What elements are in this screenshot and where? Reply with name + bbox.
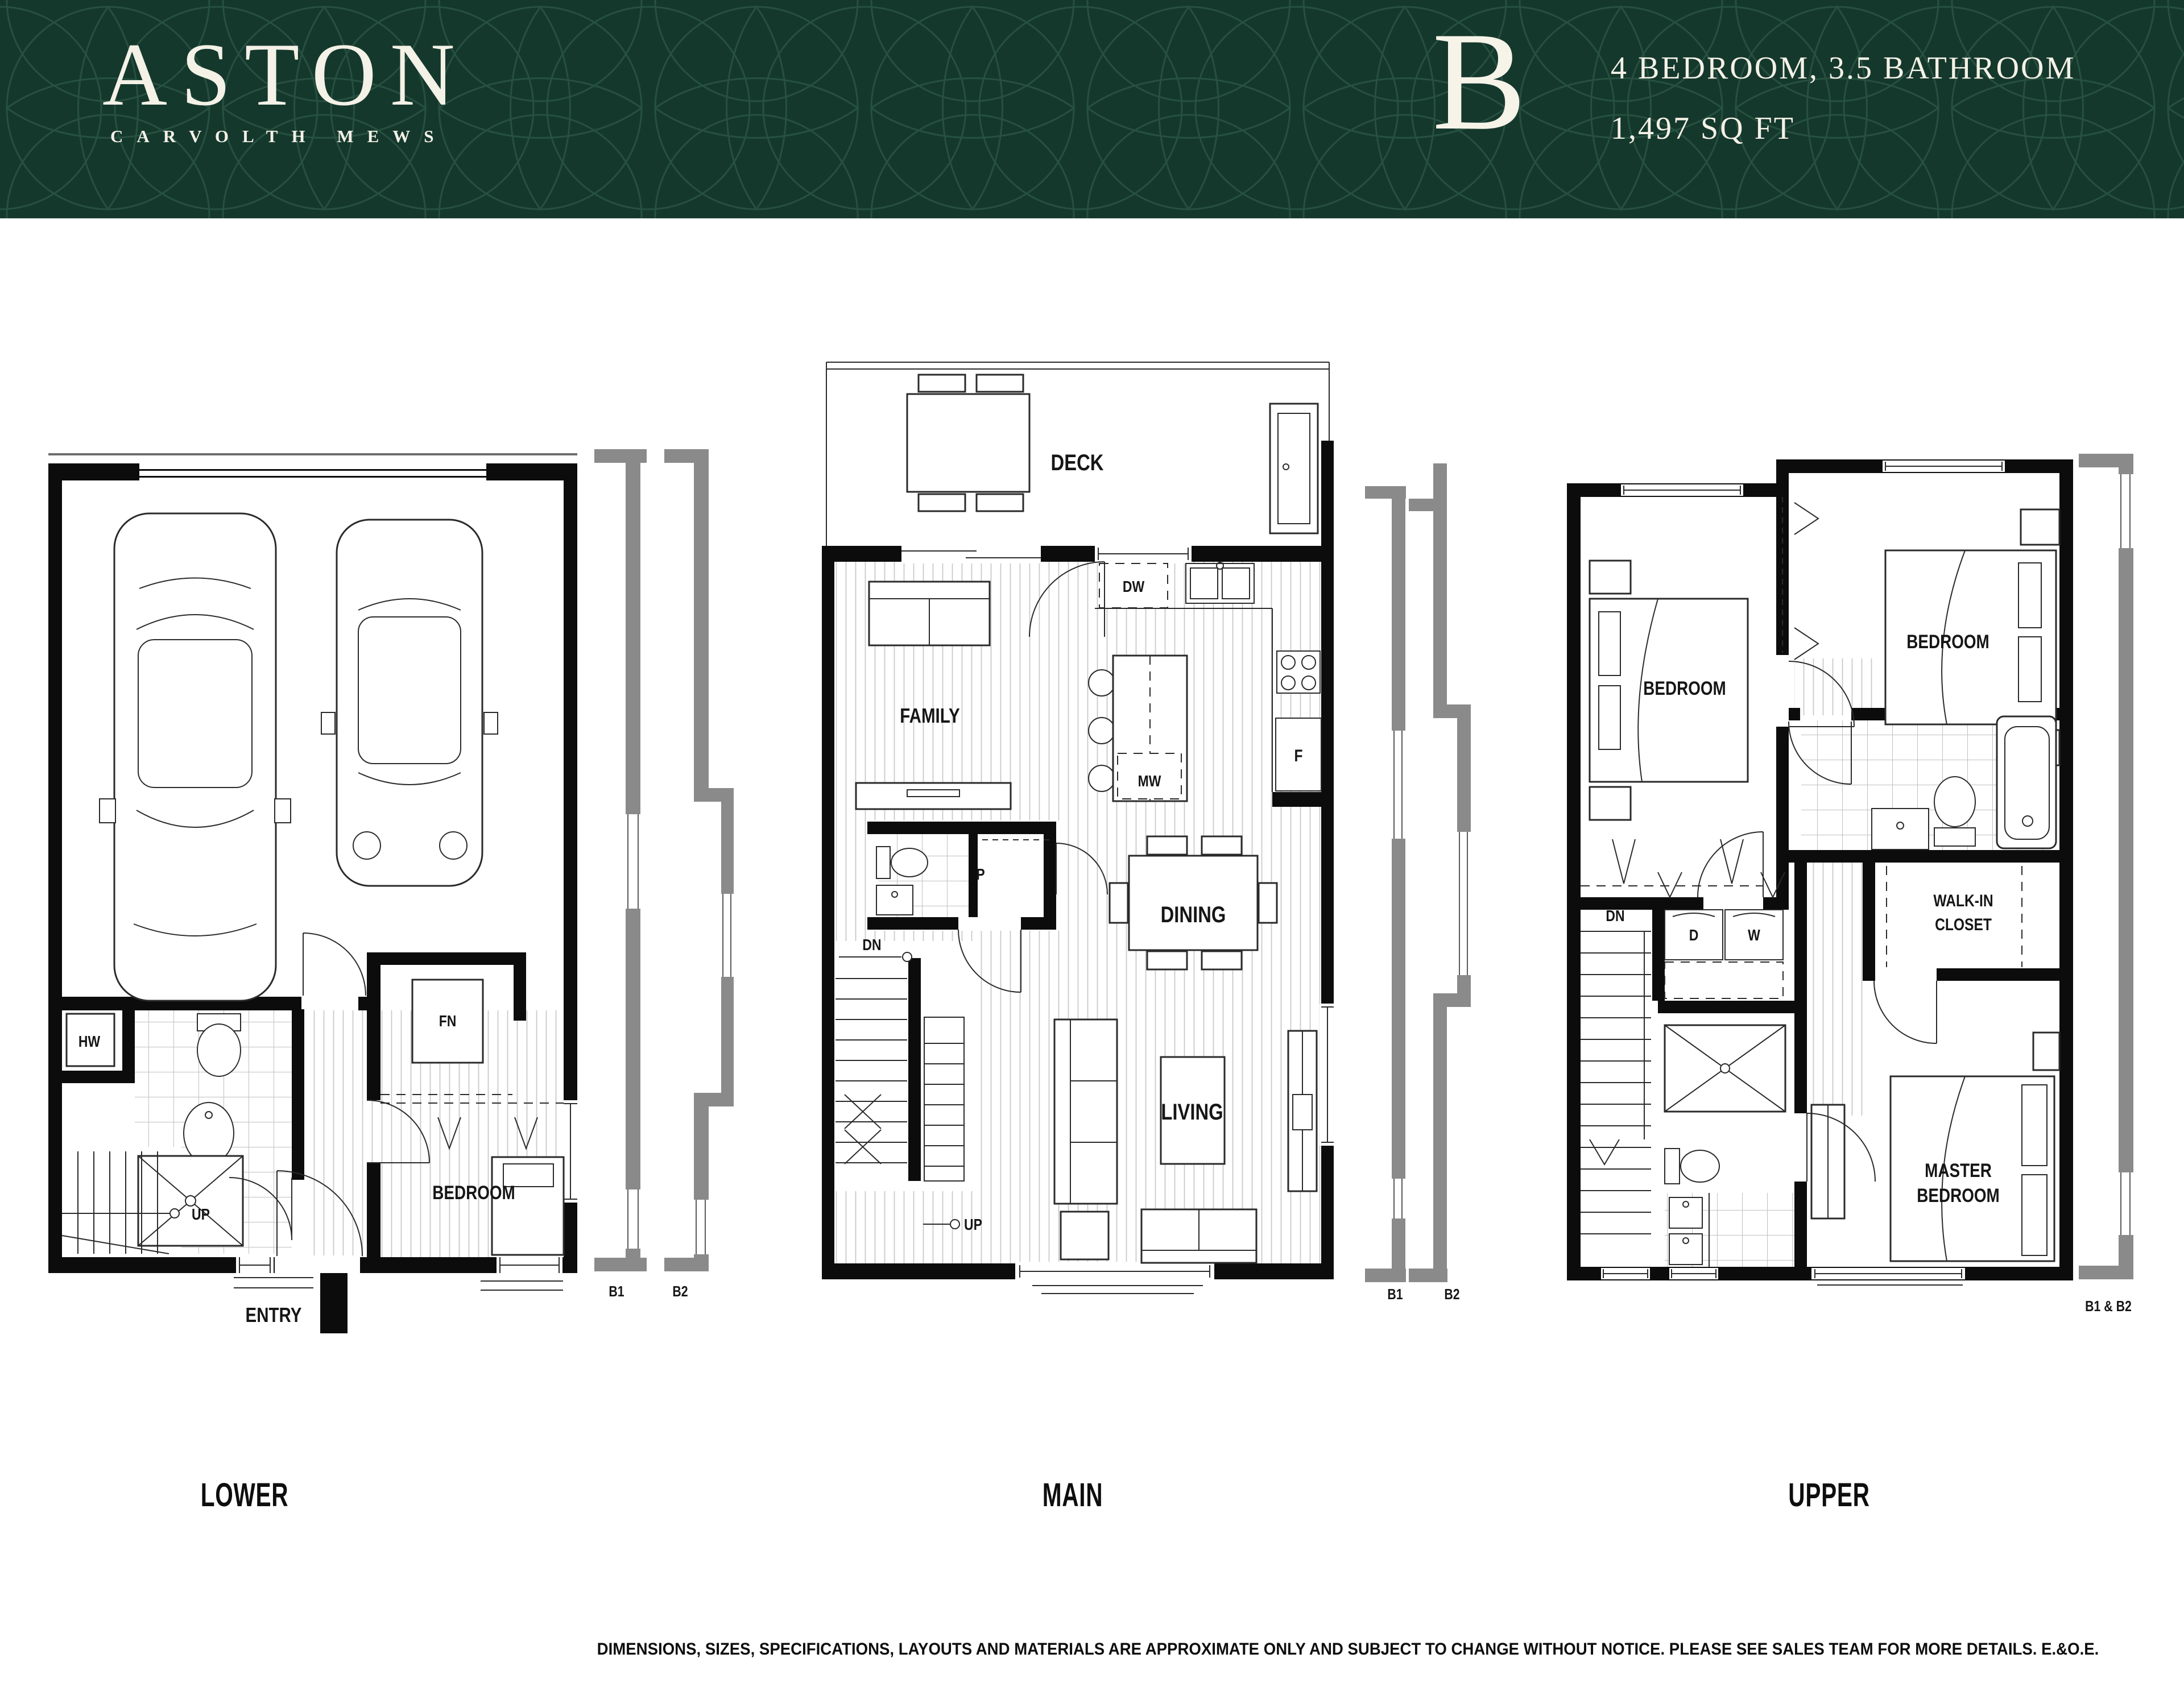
label-d: D: [1689, 927, 1699, 944]
label-p: P: [976, 866, 985, 884]
label-master-2: BEDROOM: [1917, 1184, 2000, 1206]
label-w: W: [1748, 927, 1760, 944]
section-b2: [1409, 463, 1473, 1282]
shower: [138, 1156, 243, 1246]
header-banner: ASTON CARVOLTH MEWS B 4 BEDROOM, 3.5 BAT…: [0, 0, 2184, 218]
label-b2: B2: [1444, 1286, 1459, 1303]
label-bedroom-right: BEDROOM: [1906, 631, 1989, 652]
label-dn: DN: [862, 936, 881, 954]
label-walkin-1: WALK-IN: [1933, 891, 1993, 910]
label-dw: DW: [1123, 578, 1145, 596]
label-hw: HW: [78, 1033, 101, 1051]
floor-hatch: [1794, 658, 1874, 715]
section-b1b2: [2079, 454, 2136, 1279]
label-up: UP: [192, 1206, 210, 1224]
label-b1: B1: [609, 1283, 624, 1300]
brand-title: ASTON: [102, 30, 469, 121]
lower-floor-plan: HW FN UP BEDROOM ENTRY: [48, 446, 577, 1333]
label-walkin-2: CLOSET: [1935, 915, 1992, 934]
upper-floor-plan: BEDROOM BEDROOM WALK-IN CLOSET DN D W MA…: [1567, 459, 2073, 1346]
label-f: F: [1294, 746, 1302, 765]
section-b2: [664, 449, 734, 1271]
wall-section-main: B1 B2: [1362, 463, 1493, 1350]
bedroom-left: [1581, 561, 1763, 886]
brand-logo: ASTON CARVOLTH MEWS: [102, 30, 469, 147]
plan-spec-area: 1,497 SQ FT: [1611, 110, 2075, 147]
wall-section-lower: B1 B2: [591, 443, 734, 1330]
label-dn: DN: [1606, 907, 1624, 925]
label-bedroom-left: BEDROOM: [1643, 677, 1726, 699]
plan-letter: B: [1432, 10, 1526, 152]
car-sedan: [100, 513, 291, 1001]
stairs-down: [1581, 931, 1651, 1234]
label-mw: MW: [1138, 773, 1162, 790]
label-living: LIVING: [1161, 1099, 1223, 1125]
label-family: FAMILY: [900, 704, 960, 727]
floor-hatch: [1808, 863, 1863, 1116]
plan-spec-bed-bath: 4 BEDROOM, 3.5 BATHROOM: [1611, 50, 2075, 86]
section-b1: [1365, 486, 1408, 1282]
label-entry: ENTRY: [246, 1303, 302, 1326]
label-up: UP: [964, 1216, 982, 1234]
label-master-1: MASTER: [1925, 1159, 1992, 1181]
label-fn: FN: [439, 1013, 457, 1030]
label-dining: DINING: [1161, 902, 1226, 927]
label-b1b2: B1 & B2: [2085, 1298, 2132, 1315]
wall-section-upper: B1 & B2: [2079, 449, 2184, 1336]
disclaimer-text: DIMENSIONS, SIZES, SPECIFICATIONS, LAYOU…: [579, 1640, 2117, 1659]
floor-title-main: MAIN: [1009, 1476, 1136, 1514]
plan-specs: 4 BEDROOM, 3.5 BATHROOM 1,497 SQ FT: [1611, 50, 2075, 147]
laundry: [1658, 872, 1785, 998]
label-b1: B1: [1387, 1286, 1403, 1303]
label-b2: B2: [672, 1283, 688, 1300]
floor-title-upper: UPPER: [1765, 1476, 1893, 1514]
toilet: [197, 1014, 241, 1076]
label-bedroom: BEDROOM: [432, 1182, 515, 1203]
label-deck: DECK: [1051, 450, 1104, 475]
bathroom-sink: [184, 1102, 234, 1164]
section-b1: [594, 449, 647, 1271]
car-compact: [321, 520, 498, 886]
main-floor-plan: DECK FAMILY DW P MW F DN DINING LIVING U…: [822, 355, 1334, 1322]
floor-title-lower: LOWER: [181, 1476, 308, 1514]
brand-subtitle: CARVOLTH MEWS: [110, 126, 469, 147]
